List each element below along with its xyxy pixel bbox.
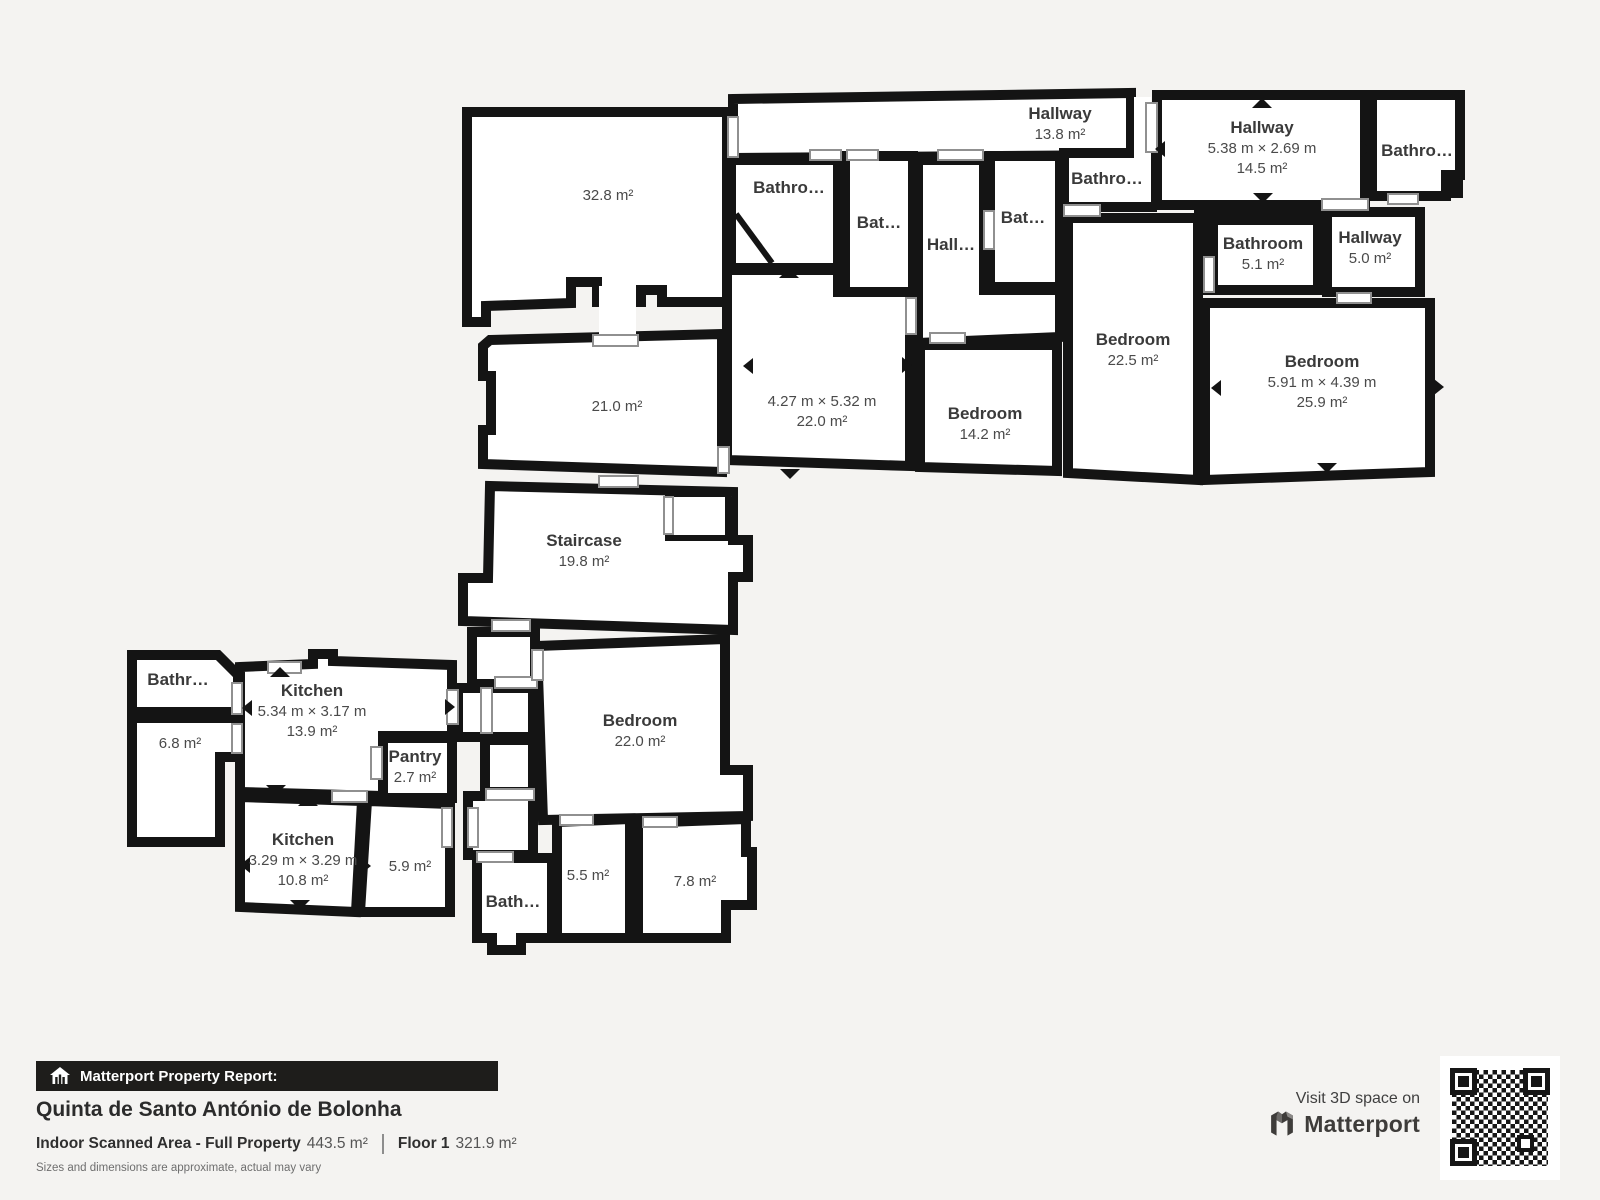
room-label-bathroom-c: Bat…: [1001, 207, 1045, 229]
room-label-bathroom-5-1: Bathroom5.1 m²: [1223, 233, 1303, 275]
room-label-bathroom-a: Bathro…: [753, 177, 825, 199]
qr-alignment-square: [1517, 1135, 1534, 1152]
vestibule-3: [485, 740, 533, 792]
room-label-bathroom-b: Bat…: [857, 212, 901, 234]
scanned-area-value: 443.5 m²: [307, 1135, 368, 1153]
property-title: Quinta de Santo António de Bolonha: [36, 1098, 402, 1122]
report-title-bar: Matterport Property Report:: [36, 1061, 498, 1091]
room-label-room-5-5: 5.5 m²: [567, 866, 610, 886]
qr-finder-top-right: [1523, 1068, 1550, 1095]
room-label-bedroom-22-0: Bedroom22.0 m²: [603, 710, 678, 752]
vestibule-2: [458, 688, 533, 737]
room-label-room-7-8: 7.8 m²: [674, 872, 717, 892]
room-shapes: [132, 93, 1460, 950]
area-info-line: Indoor Scanned Area - Full Property 443.…: [36, 1134, 517, 1154]
staircase-niche: [668, 494, 728, 538]
room-label-kitchen-10-8: Kitchen3.29 m × 3.29 m10.8 m²: [249, 829, 358, 891]
floor-area-value: 321.9 m²: [456, 1135, 517, 1153]
floor-label: Floor 1: [398, 1135, 450, 1153]
disclaimer-text: Sizes and dimensions are approximate, ac…: [36, 1162, 321, 1174]
room-label-room-32-8: 32.8 m²: [583, 186, 634, 206]
room-label-room-5-9: 5.9 m²: [389, 857, 432, 877]
room-label-bathroom-top-right: Bathro…: [1381, 140, 1453, 162]
room-label-room-21-0: 21.0 m²: [592, 397, 643, 417]
room-shape-32-8: [467, 112, 727, 322]
info-divider: [382, 1134, 384, 1154]
matterport-logo: Matterport: [1160, 1110, 1420, 1138]
scanned-area-label: Indoor Scanned Area - Full Property: [36, 1135, 301, 1153]
room-label-bedroom-22-5: Bedroom22.5 m²: [1096, 329, 1171, 371]
room-label-hallway-13-8: Hallway13.8 m²: [1028, 103, 1091, 145]
room-label-room-6-8: 6.8 m²: [159, 734, 202, 754]
room-label-room-22-0: 4.27 m × 5.32 m22.0 m²: [768, 392, 877, 432]
room-label-bathroom-d: Bathro…: [1071, 168, 1143, 190]
qr-code: [1440, 1056, 1560, 1180]
room-label-pantry: Pantry2.7 m²: [389, 746, 442, 788]
report-bar-label: Matterport Property Report:: [80, 1068, 278, 1085]
room-label-staircase: Staircase19.8 m²: [546, 530, 622, 572]
matterport-m-icon: [1268, 1110, 1296, 1138]
room-label-bedroom-25-9: Bedroom5.91 m × 4.39 m25.9 m²: [1268, 351, 1377, 413]
room-label-bathroom-e: Bathr…: [147, 669, 208, 691]
room-label-hall-small: Hall…: [927, 234, 975, 256]
house-report-icon: [50, 1067, 70, 1085]
room-shape-room-22-0: [727, 270, 910, 466]
matterport-floorplan-report: Hallway13.8 m² Hallway5.38 m × 2.69 m14.…: [0, 0, 1600, 1200]
room-label-hallway-14-5: Hallway5.38 m × 2.69 m14.5 m²: [1208, 117, 1317, 179]
visit-3d-text: Visit 3D space on: [1160, 1090, 1420, 1108]
room-label-bedroom-14-2: Bedroom14.2 m²: [948, 403, 1023, 445]
qr-finder-bottom-left: [1450, 1139, 1477, 1166]
room-label-kitchen-13-9: Kitchen5.34 m × 3.17 m13.9 m²: [258, 680, 367, 742]
room-label-hallway-5-0: Hallway5.0 m²: [1338, 227, 1401, 269]
qr-finder-top-left: [1450, 1068, 1477, 1095]
room-label-bathroom-f: Bath…: [486, 891, 541, 913]
brand-name: Matterport: [1304, 1111, 1420, 1138]
